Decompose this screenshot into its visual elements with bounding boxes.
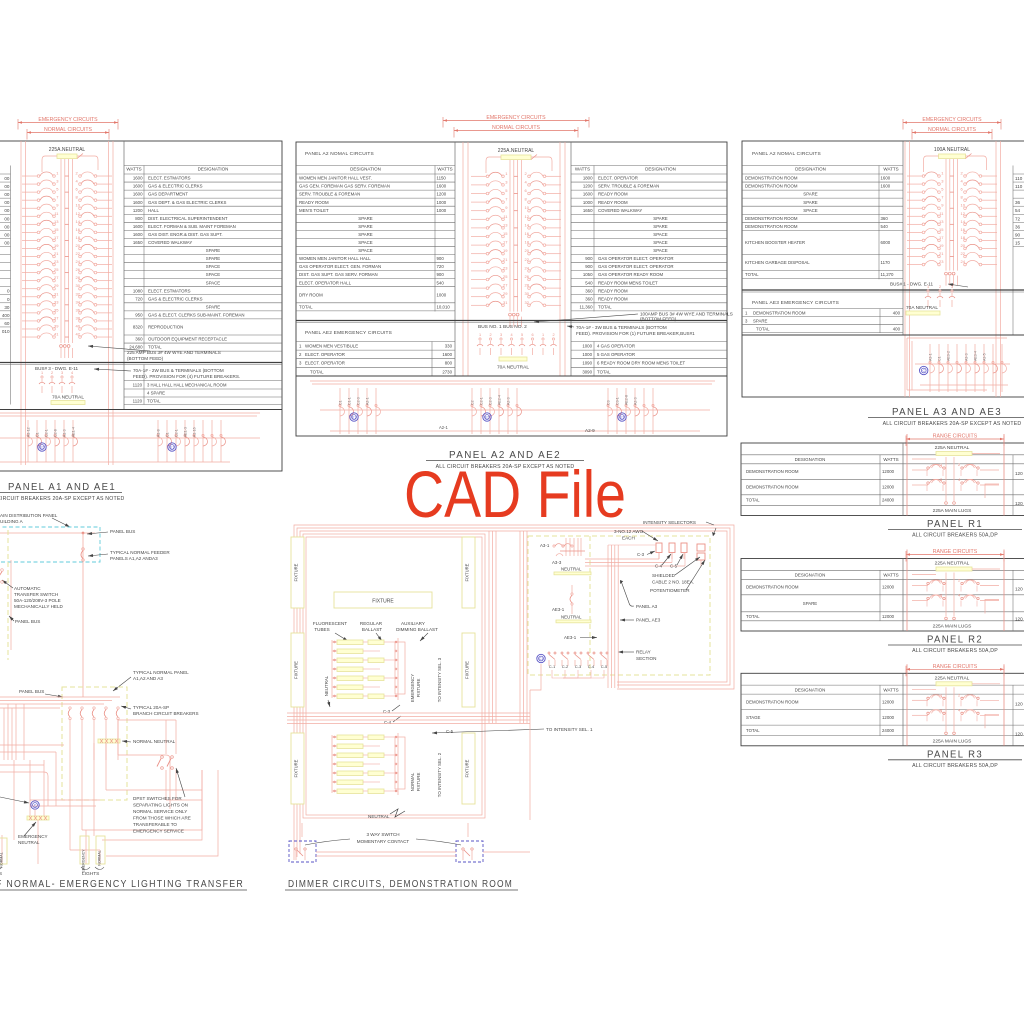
svg-text:WOMEN MEN JANITOR HALL VEST.: WOMEN MEN JANITOR HALL VEST. [299,176,372,181]
svg-text:900: 900 [437,272,445,277]
svg-text:330: 330 [445,344,453,349]
svg-text:6000: 6000 [881,240,891,245]
svg-text:1650: 1650 [583,208,593,213]
svg-text:ELECT. OPERATOR: ELECT. OPERATOR [598,176,638,181]
svg-text:27: 27 [54,275,59,280]
svg-text:RANGE CIRCUITS: RANGE CIRCUITS [933,434,978,440]
svg-text:1: 1 [41,371,43,375]
svg-text:RANGE CIRCUITS: RANGE CIRCUITS [933,549,978,555]
svg-text:42: 42 [76,332,81,337]
svg-text:WATTS: WATTS [437,167,452,172]
svg-text:7: 7 [505,197,508,202]
svg-text:SPACE: SPACE [206,264,221,269]
svg-text:21: 21 [503,257,508,262]
svg-text:1: 1 [745,311,748,316]
svg-text:C1: C1 [36,432,40,437]
svg-text:4: 4 [71,371,73,375]
svg-text:1600: 1600 [583,192,593,197]
svg-text:22: 22 [76,251,81,256]
svg-text:70A NEUTRAL: 70A NEUTRAL [906,305,938,311]
svg-text:AE2-8: AE2-8 [625,395,629,405]
svg-text:EMERGENCY: EMERGENCY [18,834,48,839]
svg-text:00: 00 [4,192,10,197]
svg-text:8320: 8320 [133,325,143,330]
svg-text:31: 31 [503,300,508,305]
svg-text:SHIELDED: SHIELDED [652,573,676,578]
svg-text:A3-3: A3-3 [965,353,969,361]
svg-text:0: 0 [7,289,10,294]
svg-text:SEPARATING LIGHTS ON: SEPARATING LIGHTS ON [133,803,188,808]
svg-text:C2-8: C2-8 [54,429,58,437]
svg-text:FEED). PROVISION FOR (4) FUTUR: FEED). PROVISION FOR (4) FUTURE BREAKERS… [133,374,240,379]
svg-text:DEMONSTRATION ROOM: DEMONSTRATION ROOM [745,184,798,189]
svg-text:1000: 1000 [582,344,592,349]
svg-text:NEUTRAL: NEUTRAL [368,814,390,819]
svg-text:SPARE: SPARE [653,216,668,221]
svg-text:2: 2 [958,462,961,467]
svg-text:0: 0 [7,297,10,302]
svg-text:SPACE: SPACE [653,240,668,245]
svg-text:1120: 1120 [133,383,143,388]
svg-text:LIGHTS: LIGHTS [82,871,99,877]
svg-text:A1-16: A1-16 [193,427,197,437]
svg-text:4 GAS OPERATOR: 4 GAS OPERATOR [597,344,635,349]
svg-text:6: 6 [961,187,964,192]
svg-text:3 HALL HALL HALL MECHANICAL: 3 HALL HALL HALL MECHANICAL ROOM [147,383,227,388]
svg-text:1650: 1650 [133,240,143,245]
svg-text:AE1-3: AE1-3 [184,427,188,437]
svg-text:1600: 1600 [442,352,452,357]
svg-text:5: 5 [521,333,523,337]
svg-text:14: 14 [961,219,966,224]
svg-text:C-3: C-3 [637,552,645,557]
svg-text:READY ROOM: READY ROOM [598,200,628,205]
svg-text:C1-1: C1-1 [348,397,352,405]
svg-text:9: 9 [56,203,59,208]
svg-text:70A-1# - 3W BUS & TERMINALS: 70A-1# - 3W BUS & TERMINALS (BOTTOM [576,325,667,330]
svg-text:16: 16 [76,227,81,232]
svg-text:GAS & ELECTRIC CLERKS: GAS & ELECTRIC CLERKS [148,184,203,189]
svg-text:EMERGENCY SERVICE: EMERGENCY SERVICE [133,829,184,834]
svg-text:SPACE: SPACE [803,208,818,213]
svg-text:C2-1: C2-1 [480,397,484,405]
svg-text:225A NEUTRAL: 225A NEUTRAL [935,445,970,451]
svg-text:C3: C3 [607,400,611,405]
svg-text:STAGE: STAGE [746,715,761,720]
svg-text:FIXTURE: FIXTURE [294,759,299,777]
svg-text:1: 1 [940,578,943,583]
svg-text:360: 360 [585,296,593,301]
svg-text:1600: 1600 [881,176,891,181]
svg-text:25: 25 [54,267,59,272]
svg-text:AE1-4: AE1-4 [72,427,76,437]
svg-text:38: 38 [76,315,81,320]
svg-text:GAS OPERATOR READY ROOM: GAS OPERATOR READY ROOM [598,272,664,277]
svg-text:2: 2 [939,285,941,289]
svg-text:35: 35 [54,307,59,312]
svg-text:12: 12 [961,211,966,216]
svg-text:ELECT. ESTMATORS: ELECT. ESTMATORS [148,288,191,293]
svg-text:37: 37 [54,315,59,320]
svg-text:PANEL BUS: PANEL BUS [110,529,135,534]
svg-text:2: 2 [958,578,961,583]
svg-text:90: 90 [1015,232,1021,237]
svg-text:1000: 1000 [437,200,447,205]
svg-text:40: 40 [76,323,81,328]
svg-text:3: 3 [61,371,63,375]
svg-text:GAS DIST. ENGR.& DIST. GAS SUP: GAS DIST. ENGR.& DIST. GAS SUPT. [148,232,223,237]
svg-text:ELECT. OPERATOR: ELECT. OPERATOR [305,352,345,357]
svg-text:READY ROOM: READY ROOM [598,288,628,293]
svg-text:TOTAL: TOTAL [148,345,162,350]
svg-text:DESIGNATION: DESIGNATION [645,167,676,172]
svg-text:C2-1: C2-1 [175,429,179,437]
svg-text:1080: 1080 [133,288,143,293]
svg-text:7: 7 [56,195,59,200]
svg-text:120: 120 [1015,587,1023,592]
svg-text:A1,A2 AND A3: A1,A2 AND A3 [133,676,163,681]
svg-text:11: 11 [54,211,59,216]
svg-text:4: 4 [510,333,512,337]
svg-text:WOMEN MEN JANITOR HALL HALL: WOMEN MEN JANITOR HALL HALL [299,256,371,261]
svg-text:22: 22 [525,257,530,262]
svg-text:1: 1 [940,462,943,467]
svg-text:A2-3: A2-3 [507,397,511,405]
svg-text:00: 00 [4,176,10,181]
svg-text:1600: 1600 [133,192,143,197]
svg-text:7: 7 [941,195,944,200]
svg-text:39: 39 [54,323,59,328]
svg-text:C1: C1 [339,400,343,405]
svg-text:36: 36 [76,307,81,312]
svg-text:110: 110 [1015,184,1023,189]
svg-text:950: 950 [135,312,143,317]
svg-text:NEUTRAL: NEUTRAL [561,567,582,572]
svg-text:32: 32 [525,300,530,305]
svg-text:360: 360 [585,288,593,293]
svg-text:PANEL A3 AND AE3: PANEL A3 AND AE3 [892,406,1002,418]
svg-text:225A.NEUTRAL: 225A.NEUTRAL [498,148,535,154]
svg-text:DEMONSTRATION ROOM: DEMONSTRATION ROOM [746,585,799,590]
svg-text:FIXTURE: FIXTURE [294,563,299,581]
svg-text:800: 800 [445,361,453,366]
svg-text:1600: 1600 [437,184,447,189]
svg-text:TOTAL: TOTAL [310,369,324,374]
svg-text:11: 11 [939,211,944,216]
svg-text:23: 23 [503,265,508,270]
svg-text:C-3: C-3 [575,664,582,669]
svg-text:SPARE: SPARE [358,216,373,221]
svg-text:225A NEUTRAL: 225A NEUTRAL [935,675,970,681]
svg-text:AE3-2: AE3-2 [947,351,951,361]
svg-text:A1-12: A1-12 [27,427,31,437]
svg-text:00: 00 [4,184,10,189]
svg-text:1: 1 [941,171,944,176]
svg-text:A3-5: A3-5 [983,353,987,361]
svg-text:PANEL R3: PANEL R3 [927,748,983,760]
svg-text:6: 6 [76,187,79,192]
svg-text:SPARE: SPARE [358,224,373,229]
svg-text:20: 20 [961,243,966,248]
svg-text:WATTS: WATTS [883,457,898,462]
svg-text:SPACE: SPACE [358,240,373,245]
svg-text:E1: E1 [170,446,174,450]
svg-text:225A MAIN LUGS: 225A MAIN LUGS [933,738,972,744]
svg-text:MOMENTARY CONTACT: MOMENTARY CONTACT [357,839,410,844]
svg-text:GAS OPERATOR ELECT. OPERATOR: GAS OPERATOR ELECT. OPERATOR [598,264,673,269]
svg-text:NEUTRAL: NEUTRAL [324,675,329,696]
svg-text:NORMAL CIRCUITS: NORMAL CIRCUITS [928,127,976,133]
svg-text:2: 2 [961,171,964,176]
svg-text:COVERED WALKWAY: COVERED WALKWAY [598,208,642,213]
svg-text:225A MAIN LUGS: 225A MAIN LUGS [933,508,972,514]
svg-text:WATTS: WATTS [883,687,898,692]
svg-text:16: 16 [525,231,530,236]
svg-text:DESIGNATION: DESIGNATION [795,687,826,692]
svg-text:19: 19 [939,243,944,248]
svg-text:SPARE: SPARE [753,319,768,324]
svg-text:15: 15 [503,231,508,236]
svg-text:23: 23 [54,259,59,264]
svg-text:54: 54 [1015,208,1021,213]
svg-text:400: 400 [2,313,10,318]
svg-text:720: 720 [437,264,445,269]
svg-text:00: 00 [4,224,10,229]
svg-text:540: 540 [585,280,593,285]
svg-text:70A-1# - 2W BUS & TERMINALS: 70A-1# - 2W BUS & TERMINALS (BOTTOM [133,368,224,373]
svg-text:900: 900 [585,264,593,269]
svg-text:5: 5 [941,187,944,192]
svg-text:23: 23 [939,259,944,264]
svg-text:WOMEN MEN VESTIBULE: WOMEN MEN VESTIBULE [305,344,358,349]
svg-text:TS: TS [0,871,2,877]
svg-text:360: 360 [135,337,143,342]
svg-text:FROM THOSE WHICH ARE: FROM THOSE WHICH ARE [133,816,191,821]
svg-text:NORMAL CIRCUITS: NORMAL CIRCUITS [44,127,92,133]
svg-text:1600: 1600 [133,232,143,237]
svg-text:NORMAL: NORMAL [0,852,4,867]
svg-text:EMERGENCY CIRCUITS: EMERGENCY CIRCUITS [922,117,982,123]
svg-text:A1-8: A1-8 [157,429,161,437]
svg-text:1: 1 [542,333,544,337]
svg-text:70A NEUTRAL: 70A NEUTRAL [52,395,84,401]
svg-text:NORMAL CIRCUITS: NORMAL CIRCUITS [492,125,540,131]
svg-text:12000: 12000 [882,585,895,590]
svg-text:5 GAS OPERATOR: 5 GAS OPERATOR [597,352,635,357]
svg-text:DESIGNATION: DESIGNATION [350,167,381,172]
svg-text:TUBES: TUBES [314,627,329,632]
svg-text:GAS OPERATOR ELECT. OPERATOR: GAS OPERATOR ELECT. OPERATOR [598,256,673,261]
svg-text:5: 5 [56,187,59,192]
svg-text:3: 3 [951,285,953,289]
svg-text:13: 13 [939,219,944,224]
svg-text:WATTS: WATTS [126,167,141,172]
svg-text:BALLAST: BALLAST [362,627,382,632]
svg-text:C-1: C-1 [549,664,556,669]
svg-text:C-5: C-5 [446,729,454,734]
svg-text:ELECT. FORMAN & SUB. MAINT FOR: ELECT. FORMAN & SUB. MAINT FOREMAN [148,224,236,229]
svg-text:3: 3 [56,179,59,184]
svg-text:400: 400 [893,311,901,316]
svg-text:PANEL A3: PANEL A3 [636,604,658,609]
svg-text:12000: 12000 [882,699,895,704]
svg-text:ALL CIRCUIT BREAKERS 50A,DP: ALL CIRCUIT BREAKERS 50A,DP [912,533,998,539]
svg-text:TO INTENSITY SEL. 3: TO INTENSITY SEL. 3 [437,657,442,702]
svg-text:41: 41 [54,332,59,337]
svg-text:READY ROOM: READY ROOM [598,296,628,301]
svg-text:DESIGNATION: DESIGNATION [795,167,826,172]
svg-text:PANEL A2 NOMAL CIRCUITS: PANEL A2 NOMAL CIRCUITS [305,151,374,157]
svg-text:READY ROOM: READY ROOM [299,200,329,205]
svg-text:20: 20 [76,243,81,248]
svg-text:A2-3: A2-3 [634,397,638,405]
svg-text:SPACE: SPACE [206,280,221,285]
svg-text:8: 8 [525,197,528,202]
svg-text:TOTAL: TOTAL [745,272,759,277]
svg-text:720: 720 [135,296,143,301]
svg-text:TRANSFERABLE TO: TRANSFERABLE TO [133,822,177,827]
svg-text:120: 120 [1015,617,1023,622]
svg-text:CAD File: CAD File [404,457,626,531]
svg-text:HALL: HALL [148,208,159,213]
svg-text:30: 30 [525,291,530,296]
svg-text:DIST. ELECTRICAL SUPERINTENDEN: DIST. ELECTRICAL SUPERINTENDENT [148,216,228,221]
svg-text:DIST. GAS SUPT. GAS SERV. FOR: DIST. GAS SUPT. GAS SERV. FORMAN [299,272,378,277]
svg-text:12000: 12000 [882,715,895,720]
svg-text:31: 31 [54,291,59,296]
svg-text:1000: 1000 [583,200,593,205]
svg-text:225A.NEUTRAL: 225A.NEUTRAL [49,147,86,153]
svg-text:TOTAL: TOTAL [756,327,770,332]
svg-text:DIMMER CIRCUITS, DEMONSTRATI: DIMMER CIRCUITS, DEMONSTRATION ROOM [288,878,513,890]
svg-text:C-5: C-5 [601,664,608,669]
svg-text:24: 24 [525,265,530,270]
svg-text:30: 30 [76,283,81,288]
svg-text:24000: 24000 [882,498,895,503]
svg-text:1: 1 [479,333,481,337]
svg-text:1150: 1150 [437,176,447,181]
svg-text:FIXTURE: FIXTURE [416,679,421,698]
svg-text:A3-3: A3-3 [552,560,562,565]
svg-text:SPARE: SPARE [206,304,221,309]
svg-text:PANEL AE3 EMERGENCY CIRCUITS: PANEL AE3 EMERGENCY CIRCUITS [752,300,839,306]
svg-text:F NORMAL- EMERGENCY LIGHTING: F NORMAL- EMERGENCY LIGHTING TRANSFER [0,878,244,890]
svg-text:WATTS: WATTS [883,573,898,578]
svg-text:1: 1 [927,285,929,289]
svg-text:120: 120 [1015,471,1023,476]
svg-text:C2-3: C2-3 [357,397,361,405]
svg-text:16: 16 [961,227,966,232]
svg-text:19: 19 [54,243,59,248]
svg-text:ELECT. OPERATOR: ELECT. OPERATOR [305,361,345,366]
svg-text:TYPICAL NORMAL FEEDER: TYPICAL NORMAL FEEDER [110,550,170,555]
svg-text:18: 18 [525,240,530,245]
svg-text:DEMONSTRATION ROOM: DEMONSTRATION ROOM [746,469,799,474]
svg-text:FIXTURE: FIXTURE [416,773,421,792]
svg-text:AE3-4: AE3-4 [974,351,978,361]
svg-text:SPARE: SPARE [653,224,668,229]
svg-text:29: 29 [503,291,508,296]
svg-text:AUXILIARY: AUXILIARY [401,621,425,626]
svg-text:C-2: C-2 [562,664,569,669]
svg-text:800: 800 [135,216,143,221]
svg-text:10: 10 [525,205,530,210]
svg-text:2: 2 [958,692,961,697]
svg-text:6: 6 [531,333,533,337]
svg-text:TYPICAL 20A-SP: TYPICAL 20A-SP [133,705,169,710]
svg-text:FIXTURE: FIXTURE [372,599,394,605]
svg-text:50A-120/208V-3 POLE: 50A-120/208V-3 POLE [14,598,61,603]
svg-text:17: 17 [54,235,59,240]
svg-text:11,360: 11,360 [580,304,594,309]
svg-text:FIXTURE: FIXTURE [465,661,470,679]
svg-text:4 SPARE: 4 SPARE [147,391,165,396]
svg-text:12: 12 [76,211,81,216]
svg-text:TOTAL: TOTAL [746,498,760,503]
svg-text:TOTAL: TOTAL [597,369,611,374]
svg-text:COVERED WALKWAY: COVERED WALKWAY [148,240,192,245]
svg-text:24,680: 24,680 [129,345,143,350]
svg-text:32: 32 [76,291,81,296]
svg-text:15: 15 [54,227,59,232]
svg-text:00: 00 [4,232,10,237]
svg-text:ALL CIRCUIT BREAKERS 20A-SP EX: ALL CIRCUIT BREAKERS 20A-SP EXCEPT AS NO… [883,421,1022,427]
svg-text:19: 19 [503,248,508,253]
svg-text:AE2-4: AE2-4 [498,395,502,405]
svg-text:1: 1 [940,692,943,697]
svg-text:3 WAY SWITCH: 3 WAY SWITCH [366,832,399,837]
svg-text:PANEL BUS: PANEL BUS [19,689,44,694]
svg-text:17: 17 [939,235,944,240]
svg-text:400: 400 [893,327,901,332]
svg-text:900: 900 [437,256,445,261]
svg-text:PANEL A2 NOMAL CIRCUITS: PANEL A2 NOMAL CIRCUITS [752,151,821,157]
svg-text:60: 60 [4,321,10,326]
svg-text:C2-3: C2-3 [489,397,493,405]
svg-text:540: 540 [881,224,889,229]
svg-text:28: 28 [76,275,81,280]
svg-text:AIN DISTRIBUTION PANEL: AIN DISTRIBUTION PANEL [0,513,58,518]
svg-text:33: 33 [54,299,59,304]
svg-text:360: 360 [881,216,889,221]
svg-text:EMERGENCY: EMERGENCY [410,674,415,702]
svg-text:1170: 1170 [881,260,891,265]
svg-text:21: 21 [54,251,59,256]
svg-text:RANGE CIRCUITS: RANGE CIRCUITS [933,664,978,670]
svg-text:TOTAL: TOTAL [746,728,760,733]
svg-text:34: 34 [76,299,81,304]
svg-text:10: 10 [76,203,81,208]
svg-text:1600: 1600 [881,184,891,189]
svg-text:DEMONSTRATION ROOM: DEMONSTRATION ROOM [745,224,798,229]
svg-text:3: 3 [500,333,502,337]
svg-text:24: 24 [76,259,81,264]
svg-text:DPST SWITCHES FOR: DPST SWITCHES FOR [133,796,182,801]
svg-text:3: 3 [941,179,944,184]
svg-text:A2-1: A2-1 [366,397,370,405]
svg-text:00: 00 [4,200,10,205]
svg-text:SPARE: SPARE [803,601,818,606]
svg-text:GAS & ELECTRIC CLERKS: GAS & ELECTRIC CLERKS [148,296,203,301]
svg-text:E2: E2 [40,446,44,450]
svg-text:ALL CIRCUIT BREAKERS 50A,DP: ALL CIRCUIT BREAKERS 50A,DP [912,648,998,654]
svg-text:11,270: 11,270 [881,272,895,277]
svg-text:1: 1 [505,171,508,176]
svg-text:6 READY ROOM DRY ROOM MEN: 6 READY ROOM DRY ROOM MENS TOILET [597,361,686,366]
svg-text:540: 540 [437,280,445,285]
svg-text:DIMMING BALLAST: DIMMING BALLAST [396,627,438,632]
svg-text:WATTS: WATTS [883,167,898,172]
